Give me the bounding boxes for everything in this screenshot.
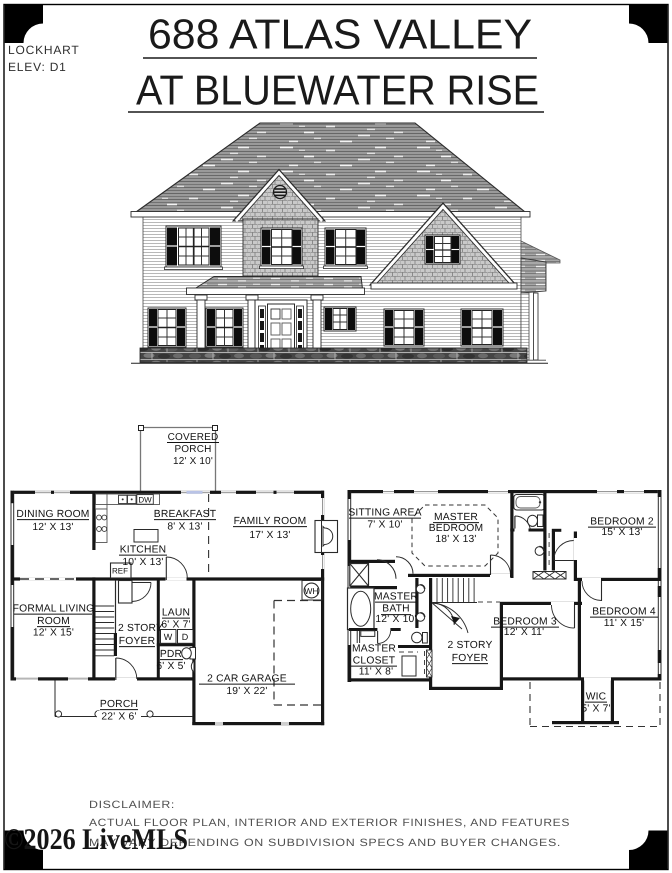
svg-text:12' X 13': 12' X 13' xyxy=(32,522,73,533)
svg-text:FAMILY ROOM: FAMILY ROOM xyxy=(234,516,307,527)
svg-text:22' X 6': 22' X 6' xyxy=(101,712,136,723)
svg-text:6' X 7': 6' X 7' xyxy=(161,620,190,631)
svg-text:ELEV: D1: ELEV: D1 xyxy=(8,60,67,74)
svg-text:©2026 LiveMLS: ©2026 LiveMLS xyxy=(4,823,188,856)
svg-text:FOYER: FOYER xyxy=(452,653,488,664)
svg-text:BEDROOM 4: BEDROOM 4 xyxy=(592,607,656,618)
svg-text:11' X 8': 11' X 8' xyxy=(359,667,394,678)
svg-text:SITTING AREA: SITTING AREA xyxy=(348,508,421,519)
svg-text:19' X 22': 19' X 22' xyxy=(226,686,267,697)
svg-text:D: D xyxy=(182,632,189,642)
svg-text:12' X 10': 12' X 10' xyxy=(173,456,213,467)
svg-text:DINING ROOM: DINING ROOM xyxy=(16,509,89,520)
svg-text:AT BLUEWATER RISE: AT BLUEWATER RISE xyxy=(136,67,539,114)
svg-text:ROOM: ROOM xyxy=(37,616,70,627)
svg-text:15' X 13': 15' X 13' xyxy=(601,527,642,538)
svg-text:WH: WH xyxy=(304,586,318,596)
svg-text:MASTER: MASTER xyxy=(374,592,418,603)
svg-text:7' X 10': 7' X 10' xyxy=(367,520,402,531)
svg-text:PDR: PDR xyxy=(160,649,182,660)
svg-text:17' X 13': 17' X 13' xyxy=(249,530,290,541)
svg-text:LAUN: LAUN xyxy=(162,608,190,619)
svg-text:KITCHEN: KITCHEN xyxy=(120,545,167,556)
svg-text:10' X 13': 10' X 13' xyxy=(122,557,163,568)
svg-text:BREAKFAST: BREAKFAST xyxy=(154,509,217,520)
svg-text:LOCKHART: LOCKHART xyxy=(8,43,80,57)
svg-text:12' X 10': 12' X 10' xyxy=(375,614,416,625)
svg-text:8' X 13': 8' X 13' xyxy=(167,522,202,533)
svg-text:2 STORY: 2 STORY xyxy=(447,640,492,651)
svg-text:CLOSET: CLOSET xyxy=(353,656,396,667)
svg-text:12' X 11': 12' X 11' xyxy=(504,627,544,638)
svg-text:COVERED: COVERED xyxy=(168,432,219,443)
svg-text:DISCLAIMER:: DISCLAIMER: xyxy=(89,799,175,811)
svg-text:W: W xyxy=(164,632,173,642)
svg-text:5' X 7': 5' X 7' xyxy=(581,704,610,715)
svg-text:BEDROOM 3: BEDROOM 3 xyxy=(493,617,557,628)
svg-text:FORMAL LIVING: FORMAL LIVING xyxy=(13,604,95,615)
svg-text:12' X 15': 12' X 15' xyxy=(33,628,74,639)
svg-text:6' X 5': 6' X 5' xyxy=(156,661,185,672)
svg-text:PORCH: PORCH xyxy=(100,699,138,710)
svg-text:MASTER: MASTER xyxy=(352,644,396,655)
svg-text:WIC: WIC xyxy=(586,692,607,703)
svg-text:PORCH: PORCH xyxy=(174,444,211,455)
svg-text:BEDROOM 2: BEDROOM 2 xyxy=(590,517,654,528)
svg-text:BEDROOM: BEDROOM xyxy=(429,523,484,534)
svg-text:MASTER: MASTER xyxy=(434,512,478,523)
svg-text:18' X 13': 18' X 13' xyxy=(435,534,476,545)
svg-text:2 CAR GARAGE: 2 CAR GARAGE xyxy=(207,674,287,685)
svg-text:FOYER: FOYER xyxy=(119,636,155,647)
svg-text:2 STORY: 2 STORY xyxy=(118,623,163,634)
svg-text:688 ATLAS VALLEY: 688 ATLAS VALLEY xyxy=(148,11,532,58)
svg-text:11' X 15': 11' X 15' xyxy=(604,618,644,629)
svg-text:DW: DW xyxy=(138,496,152,505)
svg-text:BATH: BATH xyxy=(382,604,410,615)
